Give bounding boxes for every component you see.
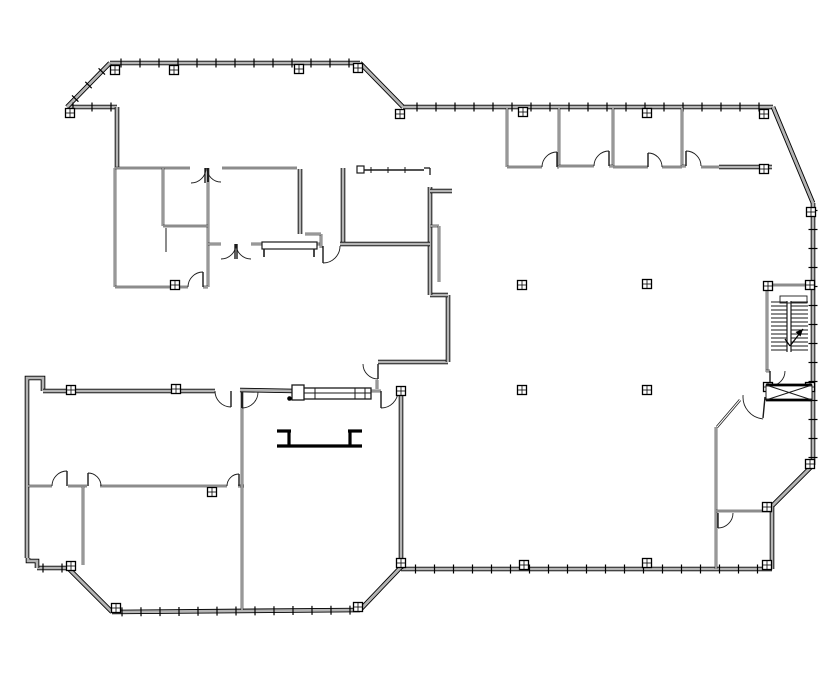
band-frame	[295, 388, 371, 399]
door-leaf	[763, 397, 765, 418]
exterior-walls	[27, 63, 813, 612]
glazing-end-box	[357, 166, 364, 173]
elevator-shaft	[766, 385, 812, 400]
exterior-wall-core	[240, 390, 295, 391]
floor-plan-drawing	[0, 0, 835, 678]
window-ticks	[43, 59, 818, 617]
door-swing-arc	[542, 152, 557, 167]
door-swing-arc	[686, 151, 701, 166]
stair	[771, 296, 808, 352]
door-swing-arc	[227, 474, 239, 486]
door-swing-arc	[242, 392, 258, 408]
door-swing-arc	[191, 168, 206, 183]
exterior-wall-core	[772, 465, 813, 506]
door-swing-arc	[52, 471, 67, 486]
reference-dot	[287, 396, 292, 401]
door-swing-arc	[88, 473, 101, 486]
door-swing-arc	[221, 244, 236, 259]
exterior-wall-core	[773, 107, 813, 203]
counter	[262, 242, 317, 257]
columns	[66, 64, 816, 613]
door-swing-arc	[743, 395, 763, 419]
storefront-band	[292, 385, 371, 400]
door-swing-arc	[188, 272, 203, 287]
door-swing-arc	[323, 246, 340, 263]
door-swing-arc	[215, 391, 231, 407]
glazed-partition	[357, 166, 430, 175]
door-swing-arc	[236, 244, 251, 259]
desk	[277, 431, 362, 447]
exterior-wall-core	[68, 568, 112, 612]
door-swing-arc	[718, 513, 733, 528]
band-end-box	[292, 385, 304, 400]
interior-wall-gap	[717, 400, 740, 427]
interior-walls	[28, 108, 813, 610]
exterior-wall-core	[360, 63, 403, 107]
exterior-wall	[27, 378, 43, 391]
exterior-wall-core	[360, 567, 401, 610]
dot-marker	[287, 396, 292, 401]
floor-plan-sheet	[0, 0, 835, 678]
door-swing-arc	[363, 364, 378, 379]
door-swing-arc	[594, 151, 609, 166]
door-swing-arc	[381, 391, 398, 408]
door-swing-arc	[648, 153, 662, 167]
counter-top	[262, 242, 317, 249]
